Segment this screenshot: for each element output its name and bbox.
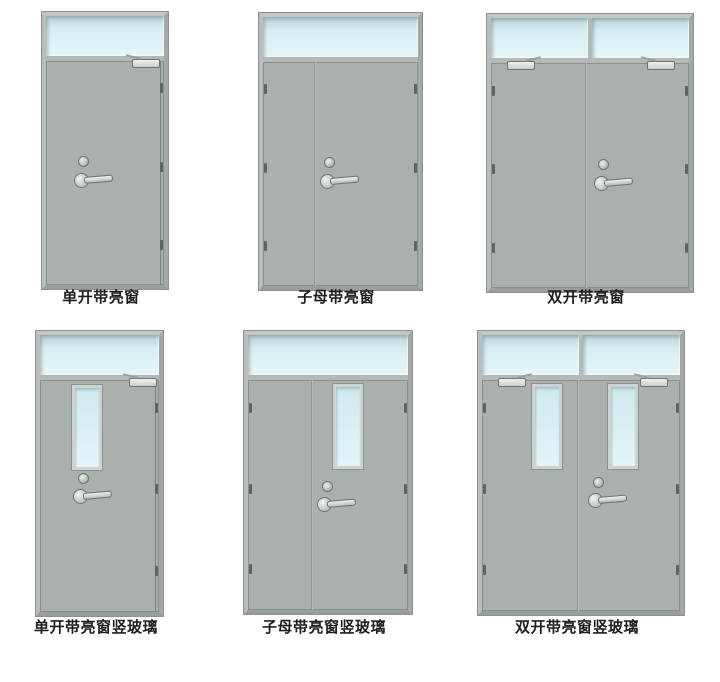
lever-handle: [74, 173, 89, 188]
door-single-transom: [42, 12, 168, 289]
transom-glass: [263, 17, 418, 57]
lever-handle: [73, 489, 88, 504]
hinge: [414, 163, 417, 173]
door-label: 子母带亮窗竖玻璃: [214, 616, 434, 637]
transom: [491, 18, 689, 63]
door-double-transom: [487, 14, 693, 292]
hinge: [685, 243, 688, 253]
door-leaves: [263, 62, 418, 286]
hinge: [155, 566, 158, 576]
door-closer: [129, 378, 157, 387]
hinge: [492, 243, 495, 253]
hinge: [155, 403, 158, 413]
hinge: [492, 86, 495, 96]
transom-glass: [46, 16, 164, 56]
door-closer: [507, 61, 535, 70]
lock-cylinder: [78, 473, 89, 484]
leaf-divider: [585, 63, 587, 288]
hinge: [264, 163, 267, 173]
hinge: [414, 241, 417, 251]
door-leaves: [491, 63, 689, 288]
transom-glass-right: [579, 335, 680, 375]
door-label: 子母带亮窗: [226, 286, 446, 307]
transom-glass-left: [491, 18, 588, 58]
door-label: 双开带亮窗竖玻璃: [467, 616, 687, 637]
door-closer: [132, 59, 160, 68]
door-label: 双开带亮窗: [476, 286, 696, 307]
lever-handle: [588, 493, 603, 508]
door-unequal-double-transom: [259, 13, 422, 290]
lever-bar: [327, 498, 356, 508]
hinge: [483, 484, 486, 494]
hinge: [404, 484, 407, 494]
lever-bar: [84, 174, 113, 184]
door-label: 单开带亮窗: [0, 286, 211, 307]
hinge: [404, 403, 407, 413]
hinge: [160, 240, 163, 250]
hinge: [676, 484, 679, 494]
hinge: [483, 403, 486, 413]
door-closer: [498, 378, 526, 387]
vision-glass: [333, 384, 363, 469]
leaf-gap: [155, 380, 156, 612]
vision-glass-right: [608, 384, 638, 469]
hinge: [676, 565, 679, 575]
door-leaf: [46, 61, 164, 285]
hinge: [160, 162, 163, 172]
hinge: [249, 484, 252, 494]
transom-glass-left: [482, 335, 579, 375]
door-double-transom-vision: [478, 331, 684, 615]
lever-bar: [598, 494, 627, 504]
lever-bar: [83, 490, 112, 500]
lock-cylinder: [593, 477, 604, 488]
transom: [482, 335, 680, 380]
hinge: [404, 564, 407, 574]
lock-cylinder: [322, 481, 333, 492]
leaf-gap: [160, 61, 161, 285]
vision-glass-left: [532, 384, 562, 469]
hinge: [160, 83, 163, 93]
hinge: [264, 84, 267, 94]
lock-cylinder: [598, 159, 609, 170]
door-catalog: 单开带亮窗 子母带亮窗: [0, 0, 720, 682]
door-closer: [647, 61, 675, 70]
hinge: [685, 86, 688, 96]
leaf-divider: [314, 62, 316, 286]
hinge: [685, 164, 688, 174]
transom-glass: [248, 335, 408, 375]
lever-handle: [317, 497, 332, 512]
transom: [248, 335, 408, 380]
transom: [46, 16, 164, 61]
door-label: 单开带亮窗竖玻璃: [0, 616, 206, 637]
hinge: [492, 164, 495, 174]
door-single-transom-vision: [36, 331, 163, 616]
transom-glass: [40, 335, 159, 375]
hinge: [155, 484, 158, 494]
door-unequal-double-transom-vision: [244, 331, 412, 614]
hinge: [249, 403, 252, 413]
hinge: [264, 241, 267, 251]
hinge: [676, 403, 679, 413]
vision-glass: [72, 385, 102, 470]
lever-bar: [604, 177, 633, 187]
leaf-divider: [577, 380, 579, 611]
lock-cylinder: [78, 156, 89, 167]
transom-glass-right: [588, 18, 689, 58]
lock-cylinder: [324, 157, 335, 168]
door-leaves: [248, 380, 408, 610]
door-closer: [640, 378, 668, 387]
door-leaves: [482, 380, 680, 611]
hinge: [414, 84, 417, 94]
hinge: [249, 564, 252, 574]
lever-handle: [594, 176, 609, 191]
transom: [40, 335, 159, 380]
hinge: [483, 565, 486, 575]
transom: [263, 17, 418, 62]
lever-bar: [330, 175, 359, 185]
leaf-divider: [311, 380, 313, 610]
lever-handle: [320, 174, 335, 189]
door-leaf: [40, 380, 159, 612]
